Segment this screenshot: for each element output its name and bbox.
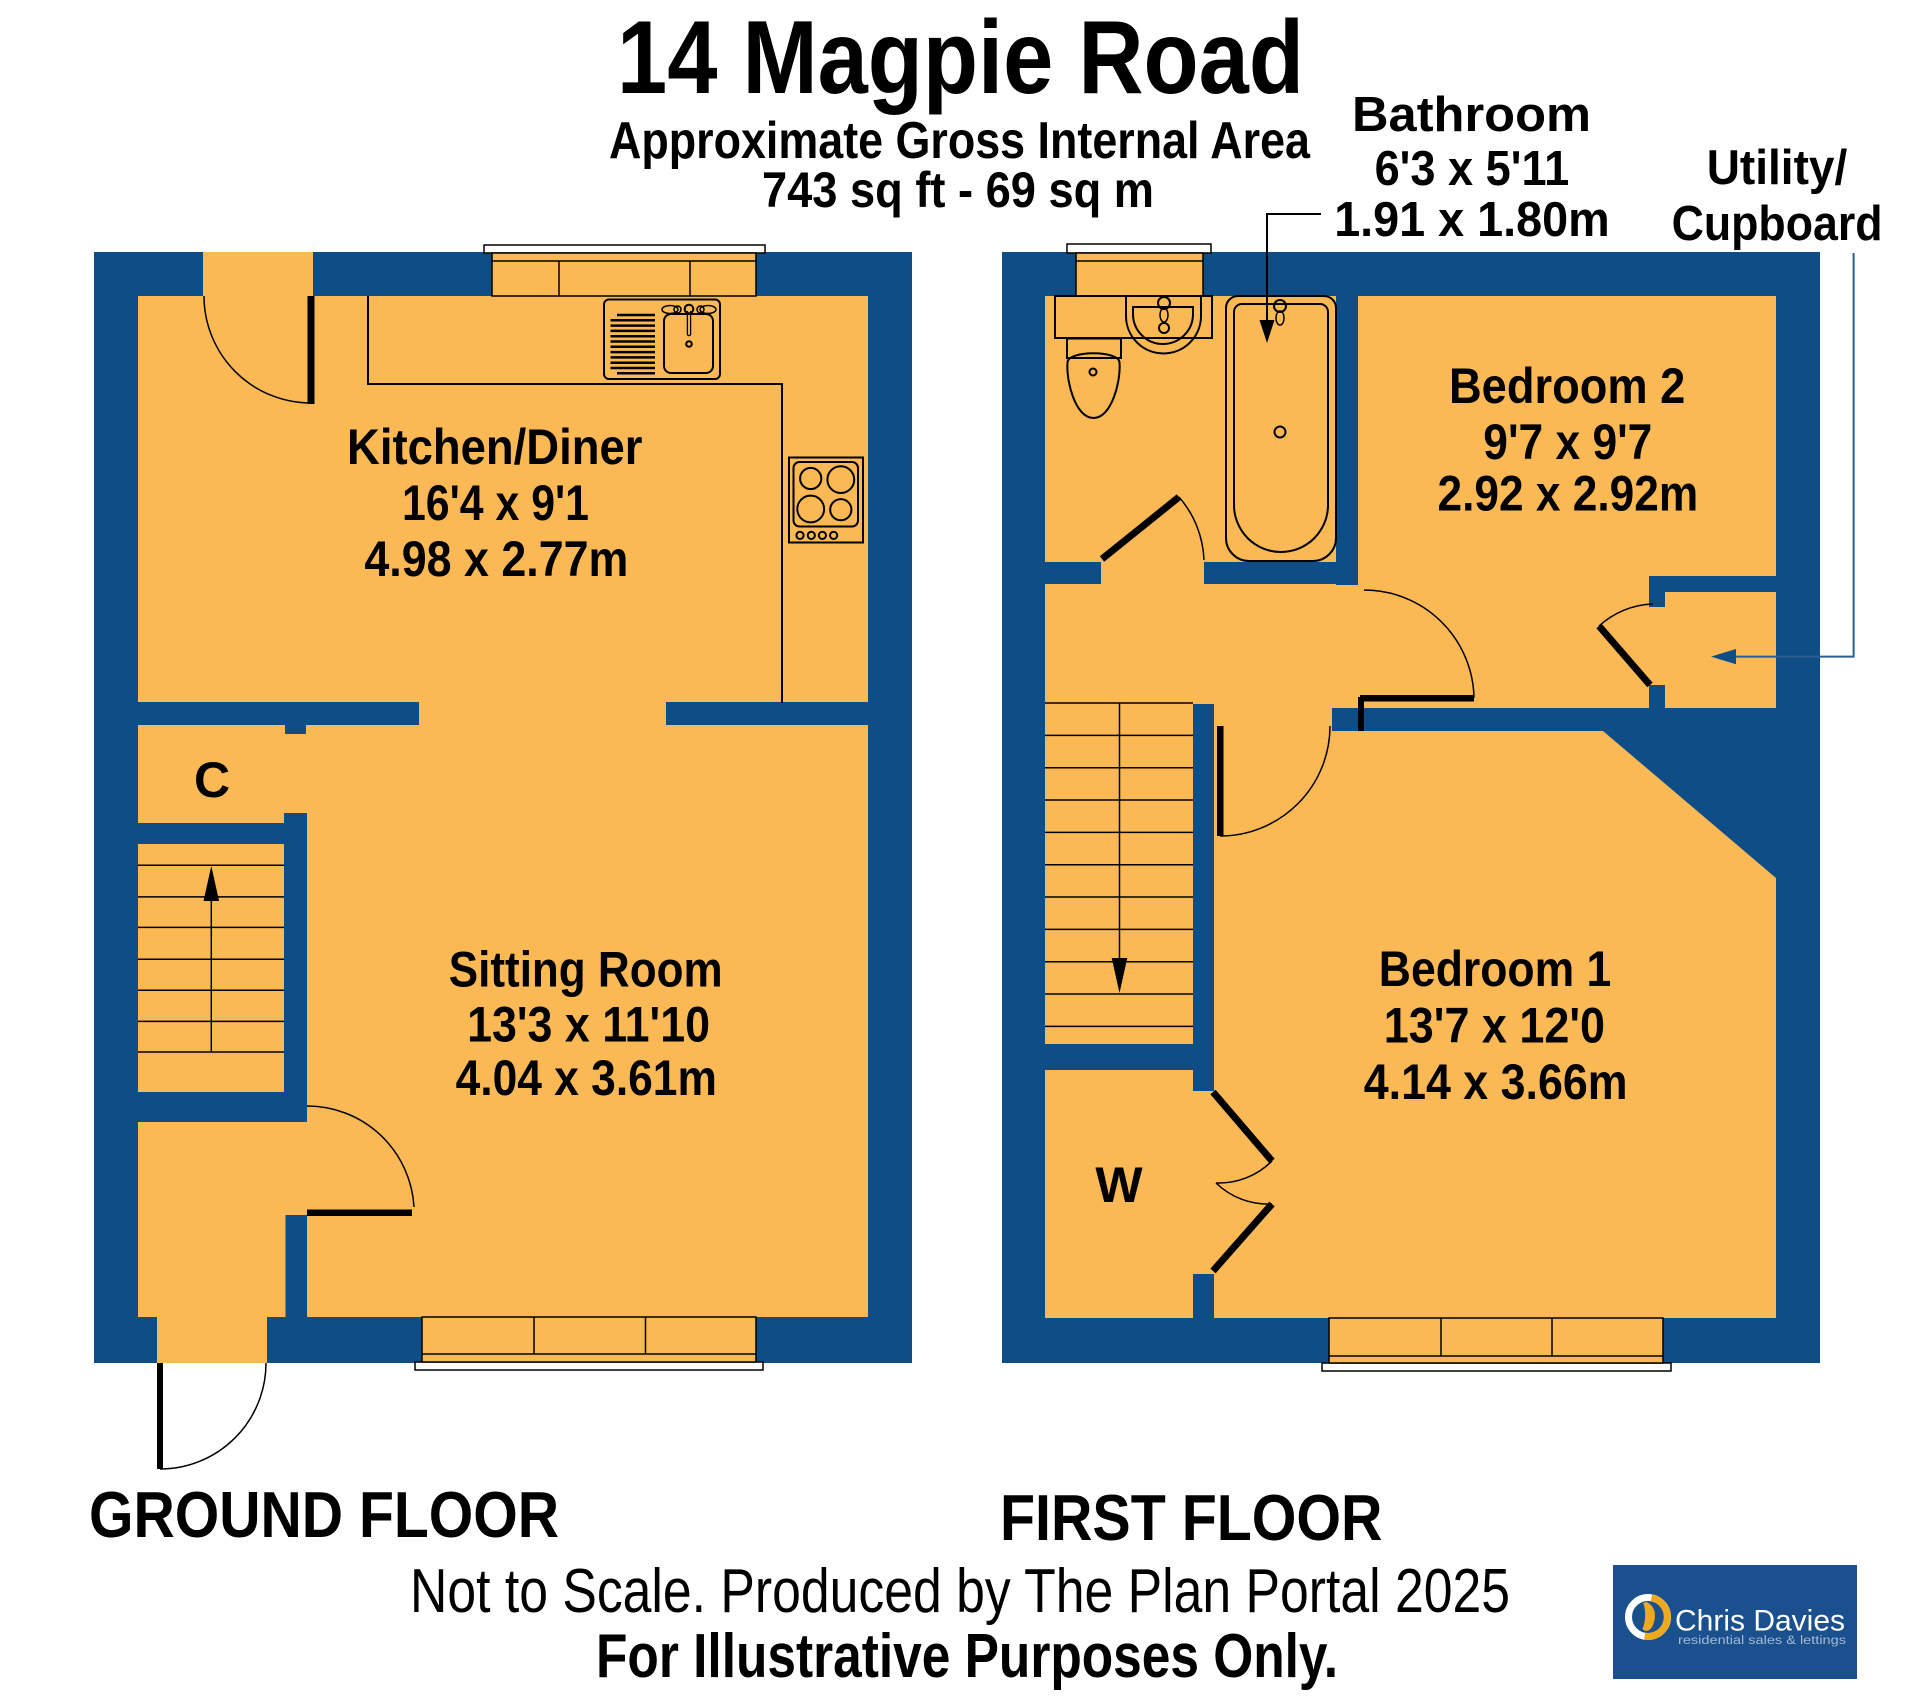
svg-text:13'7 x 12'0: 13'7 x 12'0: [1384, 998, 1605, 1054]
svg-text:1.91 x 1.80m: 1.91 x 1.80m: [1334, 193, 1610, 247]
svg-text:Utility/: Utility/: [1707, 141, 1848, 195]
svg-text:14 Magpie Road: 14 Magpie Road: [617, 0, 1304, 116]
svg-text:4.98 x 2.77m: 4.98 x 2.77m: [364, 531, 628, 587]
svg-text:Sitting Room: Sitting Room: [449, 942, 723, 998]
svg-text:13'3 x 11'10: 13'3 x 11'10: [467, 997, 710, 1053]
svg-text:C: C: [194, 752, 230, 808]
svg-text:residential sales & lettings: residential sales & lettings: [1678, 1635, 1846, 1647]
svg-text:For Illustrative Purposes Only: For Illustrative Purposes Only.: [596, 1622, 1338, 1691]
svg-text:4.14 x 3.66m: 4.14 x 3.66m: [1364, 1054, 1628, 1110]
svg-text:16'4 x 9'1: 16'4 x 9'1: [402, 475, 589, 531]
svg-text:4.04 x 3.61m: 4.04 x 3.61m: [456, 1050, 717, 1106]
svg-text:Bedroom 2: Bedroom 2: [1449, 358, 1685, 414]
svg-text:GROUND FLOOR: GROUND FLOOR: [89, 1478, 559, 1551]
svg-text:Cupboard: Cupboard: [1672, 197, 1883, 251]
svg-text:Bedroom 1: Bedroom 1: [1379, 941, 1612, 997]
svg-text:6'3 x 5'11: 6'3 x 5'11: [1375, 142, 1570, 196]
svg-text:2.92 x 2.92m: 2.92 x 2.92m: [1438, 466, 1699, 522]
svg-text:FIRST FLOOR: FIRST FLOOR: [1000, 1481, 1383, 1554]
svg-text:W: W: [1095, 1157, 1143, 1213]
svg-text:Bathroom: Bathroom: [1352, 88, 1591, 142]
svg-text:9'7 x 9'7: 9'7 x 9'7: [1483, 414, 1652, 470]
svg-text:Chris Davies: Chris Davies: [1675, 1605, 1845, 1638]
svg-text:Kitchen/Diner: Kitchen/Diner: [347, 419, 643, 475]
svg-text:Not to Scale. Produced by The: Not to Scale. Produced by The Plan Porta…: [410, 1557, 1510, 1626]
svg-text:743 sq ft - 69 sq m: 743 sq ft - 69 sq m: [762, 162, 1154, 218]
